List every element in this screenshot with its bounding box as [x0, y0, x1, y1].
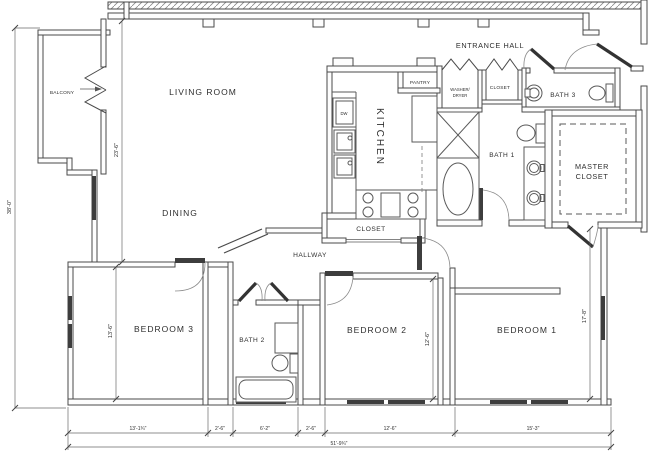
sink — [525, 85, 542, 101]
bathtub — [236, 377, 296, 402]
label-master-closet: MASTER — [575, 162, 609, 171]
label-bath3: BATH 3 — [550, 92, 576, 99]
bath2-door — [239, 283, 262, 301]
bathtub — [437, 158, 479, 220]
label-bath1: BATH 1 — [489, 152, 515, 159]
label-bath2: BATH 2 — [239, 337, 265, 344]
label-pantry: PANTRY — [410, 80, 431, 86]
label-washer-dryer: WASHER/ — [450, 87, 470, 92]
label-hallway: HALLWAY — [293, 252, 327, 259]
label-washer-dryer-2: DRYER — [453, 93, 468, 98]
label-bedroom1: BEDROOM 1 — [497, 325, 557, 335]
label-entrance-hall: ENTRANCE HALL — [456, 41, 524, 50]
bath1-door — [479, 188, 509, 220]
label-living-room: LIVING ROOM — [169, 87, 237, 97]
bedroom2-nook-door — [265, 283, 288, 301]
bath1-fixtures — [437, 112, 545, 220]
shower — [437, 112, 479, 158]
toilet — [589, 84, 613, 102]
label-bedroom3: BEDROOM 3 — [134, 324, 194, 334]
dim-living-height: 23'-6" — [114, 143, 120, 157]
stove — [356, 190, 426, 219]
kitchen-sink — [334, 130, 355, 178]
vanity — [275, 323, 298, 353]
bath2-fixtures — [236, 323, 298, 402]
dim-bedroom1-width: 15'-3" — [527, 426, 540, 432]
label-balcony: BALCONY — [50, 90, 75, 96]
balcony-door-arrow — [80, 87, 102, 92]
double-vanity — [524, 147, 545, 220]
entry-door — [565, 44, 632, 70]
dim-bedroom1-height: 17'-8" — [582, 309, 588, 323]
toilet — [272, 354, 298, 373]
dim-chase-east: 2'-6" — [306, 426, 316, 432]
dim-bedroom3-width: 13'-1¾" — [130, 426, 147, 432]
label-dishwasher: DW — [341, 111, 348, 116]
balcony-walls — [38, 19, 110, 175]
floor-plan-canvas: BALCONY LIVING ROOM DINING KITCHEN ENTRA… — [0, 0, 650, 459]
pantry-cabinet — [412, 96, 437, 142]
bath3-door — [524, 49, 554, 69]
bedroom2-door — [325, 271, 353, 305]
dim-chase-west: 2'-6" — [215, 426, 225, 432]
toilet — [517, 124, 545, 143]
floor-plan: BALCONY LIVING ROOM DINING KITCHEN ENTRA… — [0, 0, 650, 459]
master-closet-door — [568, 225, 598, 247]
dim-bedroom3-height: 13'-6" — [108, 324, 114, 338]
dim-overall-width: 51'-9¾" — [331, 441, 348, 447]
dim-bedroom2-height: 12'-6" — [425, 332, 431, 346]
dim-bath2-width: 6'-2" — [260, 426, 270, 432]
label-bedroom2: BEDROOM 2 — [347, 325, 407, 335]
bedroom1-door — [417, 236, 450, 270]
label-master-closet-2: CLOSET — [576, 172, 609, 181]
dim-bedroom2-width: 12'-6" — [384, 426, 397, 432]
dim-overall-height: 38'-0" — [7, 200, 13, 214]
label-kitchen: KITCHEN — [374, 108, 385, 166]
label-hall-closet: CLOSET — [356, 226, 385, 233]
bedroom3-door — [175, 258, 205, 291]
label-entry-closet: CLOSET — [490, 85, 510, 91]
label-dining: DINING — [162, 208, 198, 218]
